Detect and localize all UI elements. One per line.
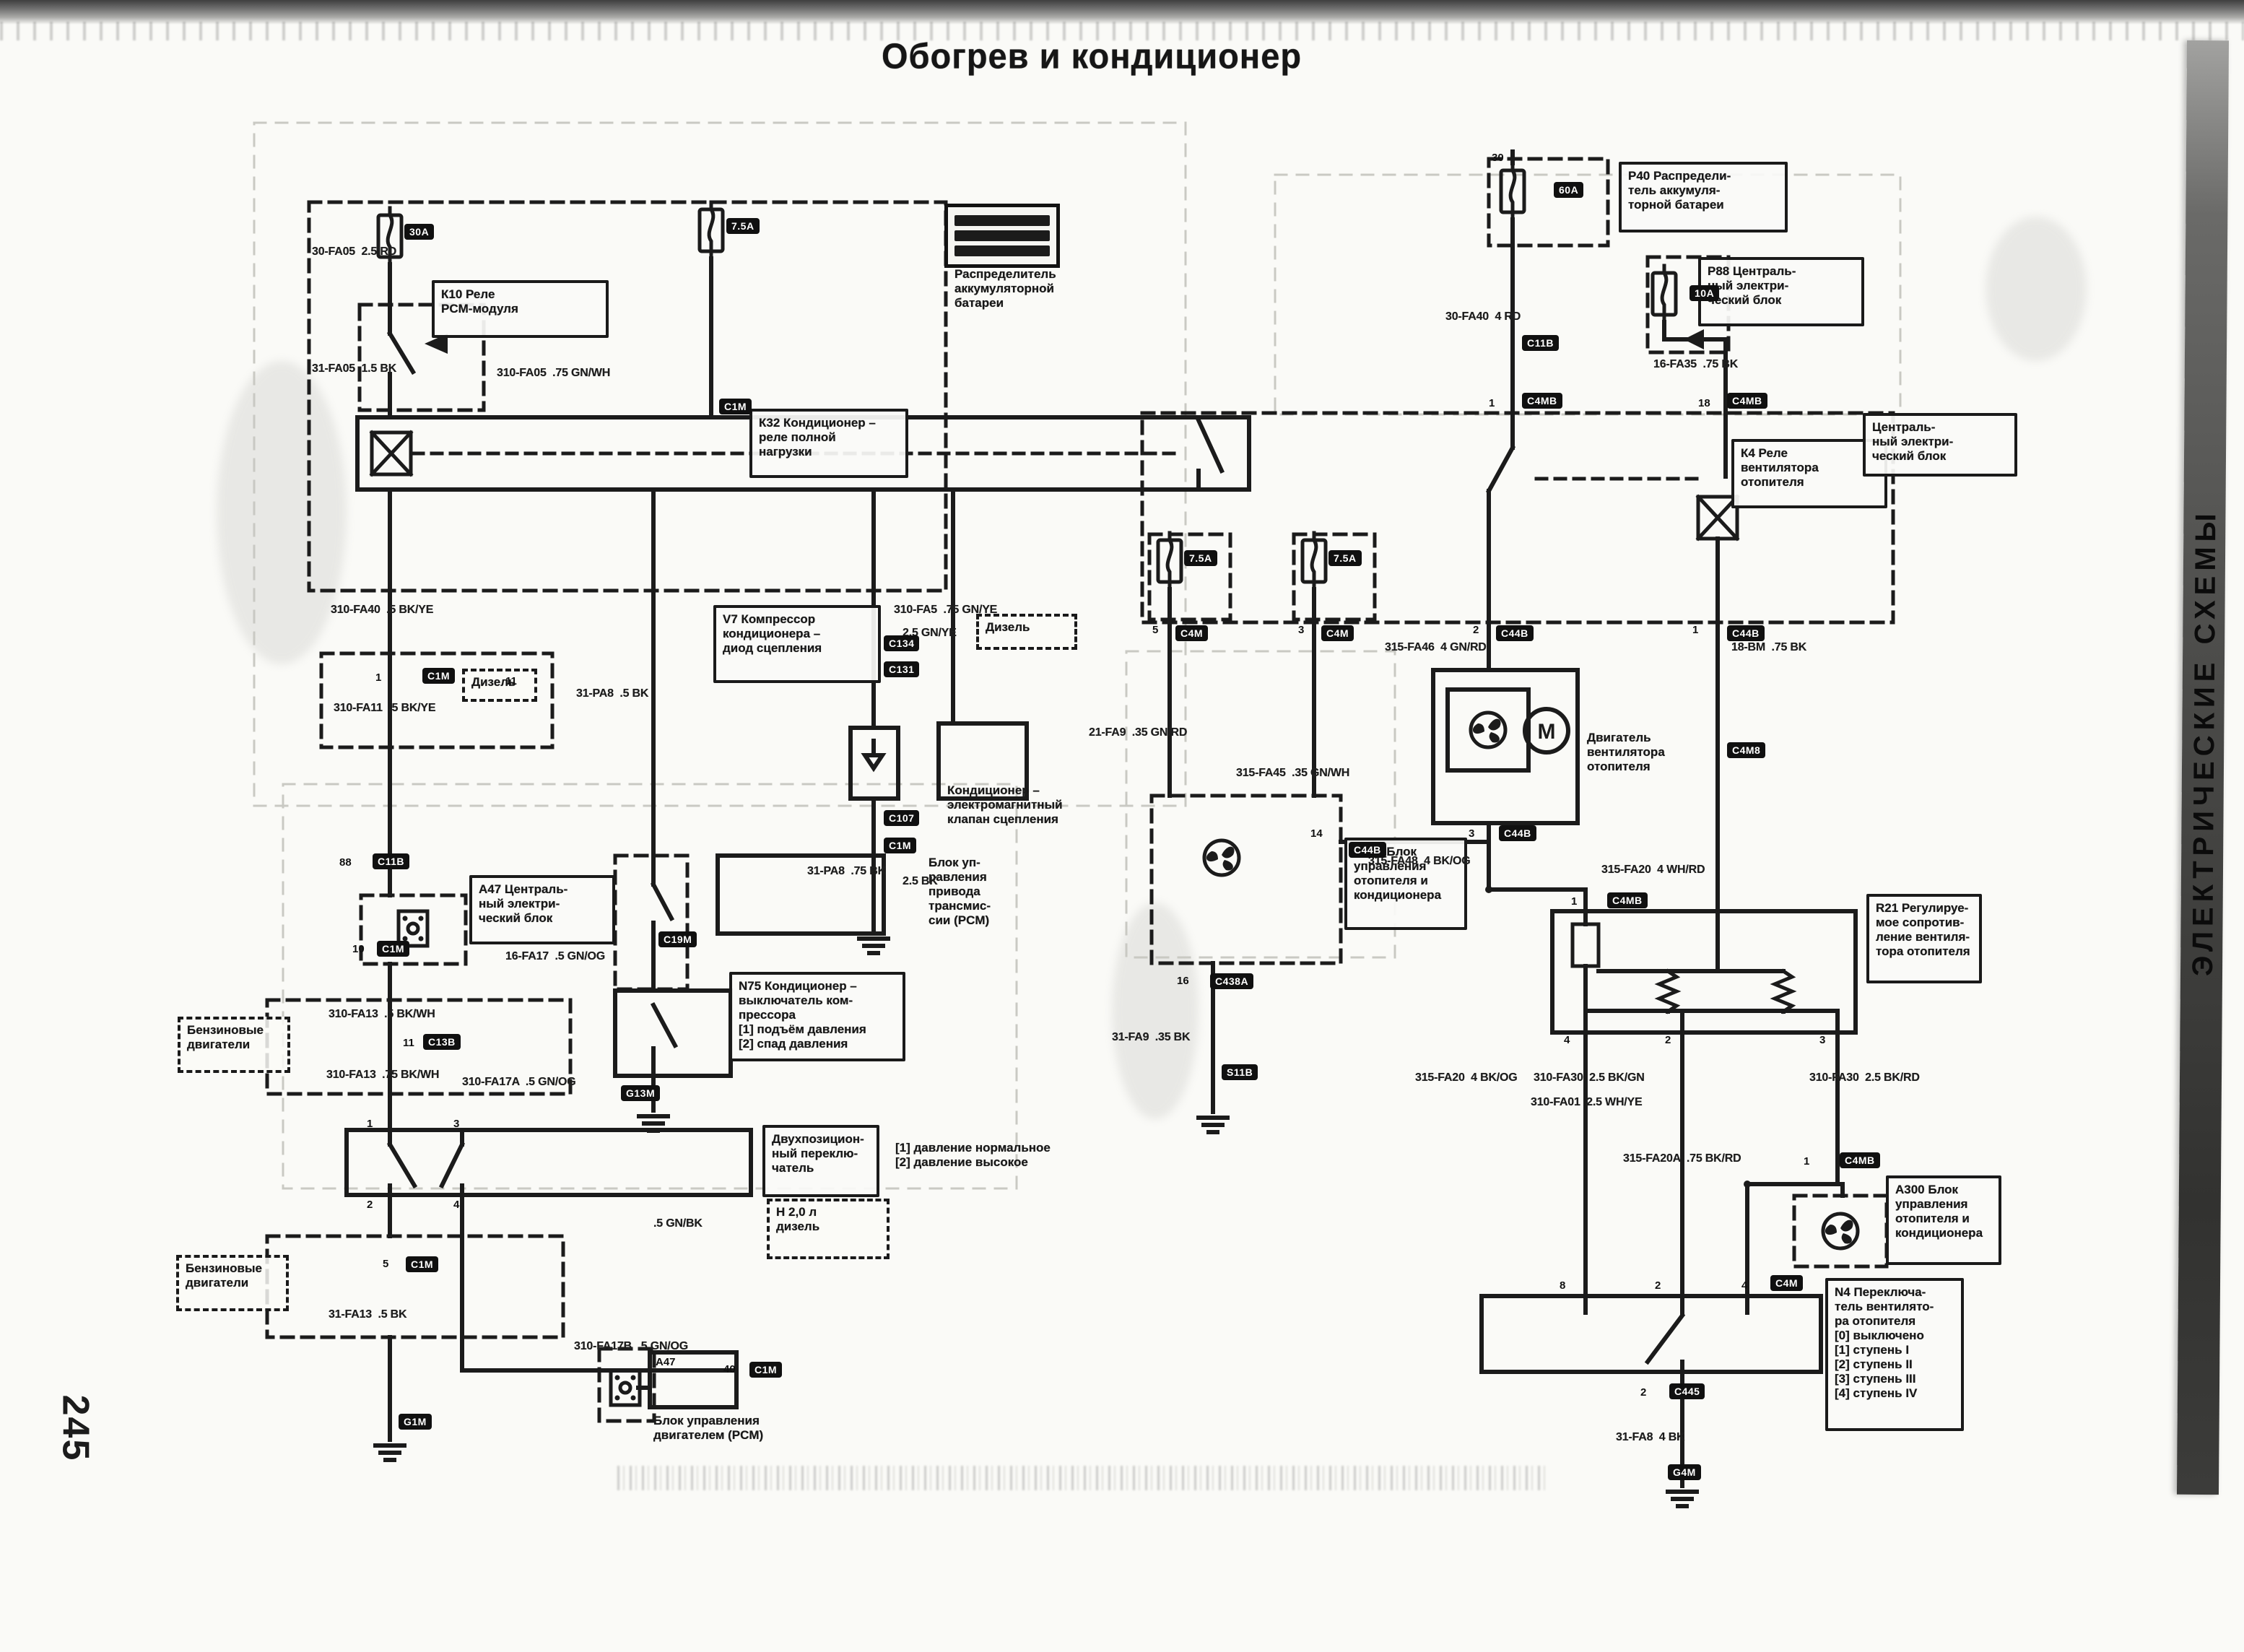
wire-label: 2.5 BK xyxy=(903,875,938,888)
connector-pill: C1M xyxy=(749,1362,782,1378)
pressure-notes: [1] давление нормальное [2] давление выс… xyxy=(895,1141,1077,1181)
clutch-valve-note: Кондиционер – электромагнитный клапан сц… xyxy=(947,783,1103,850)
fan-switch-legend: N4 Переключа- тель вентилято- ра отопите… xyxy=(1825,1278,1964,1431)
connector-pill: C131 xyxy=(884,661,919,677)
wire-label: 31-PA8 .75 BK xyxy=(807,865,886,878)
wire-label: 310-FA13 .75 BK/WH xyxy=(326,1069,439,1082)
wire-label: 31-FA8 4 BK xyxy=(1616,1431,1684,1444)
two-position-switch-label: Двухпозицион- ный переклю- чатель xyxy=(762,1125,879,1197)
connector-pill: C1M xyxy=(719,399,752,414)
connector-pill: C134 xyxy=(884,635,919,651)
wire-label: 18-BM .75 BK xyxy=(1731,641,1806,654)
pin-number: 2 xyxy=(1640,1386,1646,1399)
a47-label-top: А47 Централь- ный электри- ческий блок xyxy=(469,875,615,944)
connector-pill: C445 xyxy=(1669,1383,1705,1399)
diesel-tag-2: Дизель xyxy=(462,669,537,702)
wire-label: 31-FA13 .5 BK xyxy=(329,1308,406,1321)
n75-switch-label: N75 Кондиционер – выключатель ком- пресс… xyxy=(729,972,905,1061)
p88-central-block-label: Р88 Централь- ный электри- ческий блок xyxy=(1698,257,1864,326)
pin-number: 3 xyxy=(453,1118,459,1130)
central-block-label-right: Централь- ный электри- ческий блок xyxy=(1863,413,2017,477)
connector-pill: C44B xyxy=(1349,842,1386,858)
connector-pill: C107 xyxy=(884,810,919,826)
pin-number: 1 xyxy=(1571,895,1577,908)
wire-label: 16-FA35 .75 BK xyxy=(1653,358,1738,371)
connector-pill: C438A xyxy=(1210,973,1253,989)
pin-number: 4 xyxy=(1741,1279,1747,1292)
wire-label: 31-FA9 .35 BK xyxy=(1112,1031,1190,1044)
diesel-2l-tag: Н 2,0 л дизель xyxy=(767,1199,890,1259)
wire-label: 315-FA45 .35 GN/WH xyxy=(1236,767,1349,780)
heater-fan-motor-note: Двигатель вентилятора отопителя xyxy=(1587,731,1715,803)
connector-pill: 10A xyxy=(1689,285,1719,301)
wire-label: 315-FA46 4 GN/RD xyxy=(1385,641,1487,654)
connector-pill: 7.5A xyxy=(1184,550,1217,566)
connector-pill: C13B xyxy=(423,1034,461,1050)
connector-pill: C1M xyxy=(422,668,455,684)
pin-number: 16 xyxy=(1177,975,1189,987)
wire-label: 31-PA8 .5 BK xyxy=(576,687,648,700)
wire-label: 310-FA30 2.5 BK/RD xyxy=(1809,1071,1920,1084)
connector-pill: C4M8 xyxy=(1727,742,1765,758)
wire-label: .5 GN/BK xyxy=(653,1217,703,1230)
p40-distributor-label: Р40 Распредели- тель аккумуля- торной ба… xyxy=(1619,162,1788,232)
wire-label: 310-FA01 2.5 WH/YE xyxy=(1531,1096,1643,1109)
diagram-label-layer: К10 Реле PCM-модуляРаспределитель аккуму… xyxy=(0,0,2244,1652)
battery-distributor-black-box xyxy=(944,204,1060,268)
pin-number: 2 xyxy=(1655,1279,1661,1292)
a300-label-2: А300 Блок управления отопителя и кондици… xyxy=(1886,1175,2001,1265)
pin-number: 2 xyxy=(1665,1034,1671,1046)
pin-number: 8 xyxy=(1560,1279,1565,1292)
wire-label: 30-FA05 2.5 RD xyxy=(312,245,396,258)
pin-number: 10 xyxy=(352,943,365,955)
connector-pill: C44B xyxy=(1496,625,1534,641)
pin-number: 3 xyxy=(1819,1034,1825,1046)
sidebar-section-title: ЭЛЕКТРИЧЕСКИЕ СХЕМЫ xyxy=(2180,40,2226,1495)
pin-number: 2 xyxy=(367,1199,373,1211)
connector-pill: C44B xyxy=(1727,625,1765,641)
pin-number: 4 xyxy=(453,1199,459,1211)
pin-number: 30 xyxy=(1492,152,1504,164)
wire-label: 16-FA17 .5 GN/OG xyxy=(505,950,605,963)
connector-pill: C4M xyxy=(1321,625,1354,641)
connector-pill: C4MB xyxy=(1727,393,1767,409)
pin-number: 14 xyxy=(1310,827,1323,840)
pin-number: 18 xyxy=(1698,397,1710,409)
pin-number: 11 xyxy=(403,1037,414,1049)
pin-number: 11 xyxy=(505,675,517,687)
connector-pill: C4M xyxy=(1770,1275,1803,1291)
pin-number: 5 xyxy=(1152,624,1158,636)
petrol-engines-2: Бензиновые двигатели xyxy=(176,1255,289,1311)
pin-number: 1 xyxy=(367,1118,373,1130)
scanned-manual-page: Обогрев и кондиционер 245 xyxy=(0,0,2244,1652)
connector-pill: G13M xyxy=(621,1085,660,1101)
pin-number: 5 xyxy=(383,1258,388,1270)
pin-number: 40 xyxy=(723,1363,736,1375)
battery-distributor-note-left: Распределитель аккумуляторной батареи xyxy=(954,267,1110,339)
connector-pill: G4M xyxy=(1668,1464,1701,1480)
wire-label: 30-FA40 4 RD xyxy=(1445,310,1521,323)
pin-number: 3 xyxy=(1298,624,1304,636)
connector-pill: C11B xyxy=(373,853,409,869)
connector-pill: G1M xyxy=(399,1414,432,1430)
connector-pill: C4M xyxy=(1175,625,1208,641)
wire-label: 310-FA05 .75 GN/WH xyxy=(497,367,610,380)
pcm-transmission-note: Блок уп- равления привода трансмис- сии … xyxy=(929,856,1033,971)
wire-label: 310-FA5 .75 GN/YE xyxy=(894,604,997,617)
illegible-bottom-caption xyxy=(617,1466,1549,1490)
pin-number: 2 xyxy=(1473,624,1479,636)
wire-label: 21-FA9 .35 GN/RD xyxy=(1089,726,1187,739)
k32-relay-label: К32 Кондиционер – реле полной нагрузки xyxy=(749,409,908,478)
pcm-engine-note: Блок управления двигателем (PCM) xyxy=(653,1414,828,1469)
wire-label: 310-FA17A .5 GN/OG xyxy=(462,1076,575,1089)
wire-label: 31-FA05 1.5 BK xyxy=(312,362,396,375)
connector-pill: 30A xyxy=(404,224,434,240)
relay-pcm-label: К10 Реле PCM-модуля xyxy=(432,280,609,338)
pin-number: А47 xyxy=(656,1356,676,1368)
connector-pill: 7.5A xyxy=(1328,550,1362,566)
connector-pill: C1M xyxy=(377,941,409,957)
pin-number: 1 xyxy=(1489,397,1495,409)
pin-number: 3 xyxy=(1469,827,1474,840)
connector-pill: C44B xyxy=(1499,825,1536,841)
connector-pill: C4MB xyxy=(1522,393,1562,409)
wire-label: 310-FA40 .5 BK/YE xyxy=(331,604,433,617)
connector-pill: 60A xyxy=(1554,182,1583,198)
connector-pill: C1M xyxy=(884,838,916,853)
connector-pill: C1M xyxy=(406,1256,438,1272)
connector-pill: C11B xyxy=(1522,335,1559,351)
connector-pill: 7.5A xyxy=(726,218,760,234)
wire-label: 310-FA17B .5 GN/OG xyxy=(574,1340,688,1353)
wire-label: 315-FA20A .75 BK/RD xyxy=(1623,1152,1741,1165)
wire-label: 310-FA30 2.5 BK/GN xyxy=(1534,1071,1645,1084)
pin-number: 4 xyxy=(1564,1034,1570,1046)
connector-pill: C4MB xyxy=(1607,892,1648,908)
connector-pill: S11B xyxy=(1222,1064,1258,1080)
petrol-engines-1: Бензиновые двигатели xyxy=(178,1017,290,1073)
pin-number: 1 xyxy=(375,671,381,684)
pin-number: 88 xyxy=(339,856,352,869)
connector-pill: C4MB xyxy=(1840,1152,1880,1168)
v7-compressor-label: V7 Компрессор кондиционера – диод сцепле… xyxy=(713,605,881,683)
connector-pill: C19M xyxy=(658,931,697,947)
wire-label: 310-FA11 .5 BK/YE xyxy=(334,702,435,715)
r21-resistor-label: R21 Регулируе- мое сопротив- ление венти… xyxy=(1866,894,1982,983)
wire-label: 315-FA20 4 BK/OG xyxy=(1415,1071,1518,1084)
wire-label: 310-FA13 .5 BK/WH xyxy=(329,1008,435,1021)
wire-label: 315-FA20 4 WH/RD xyxy=(1601,864,1705,877)
pin-number: 1 xyxy=(1692,624,1698,636)
pin-number: 1 xyxy=(1804,1155,1809,1168)
diesel-tag-1: Дизель xyxy=(976,614,1077,650)
